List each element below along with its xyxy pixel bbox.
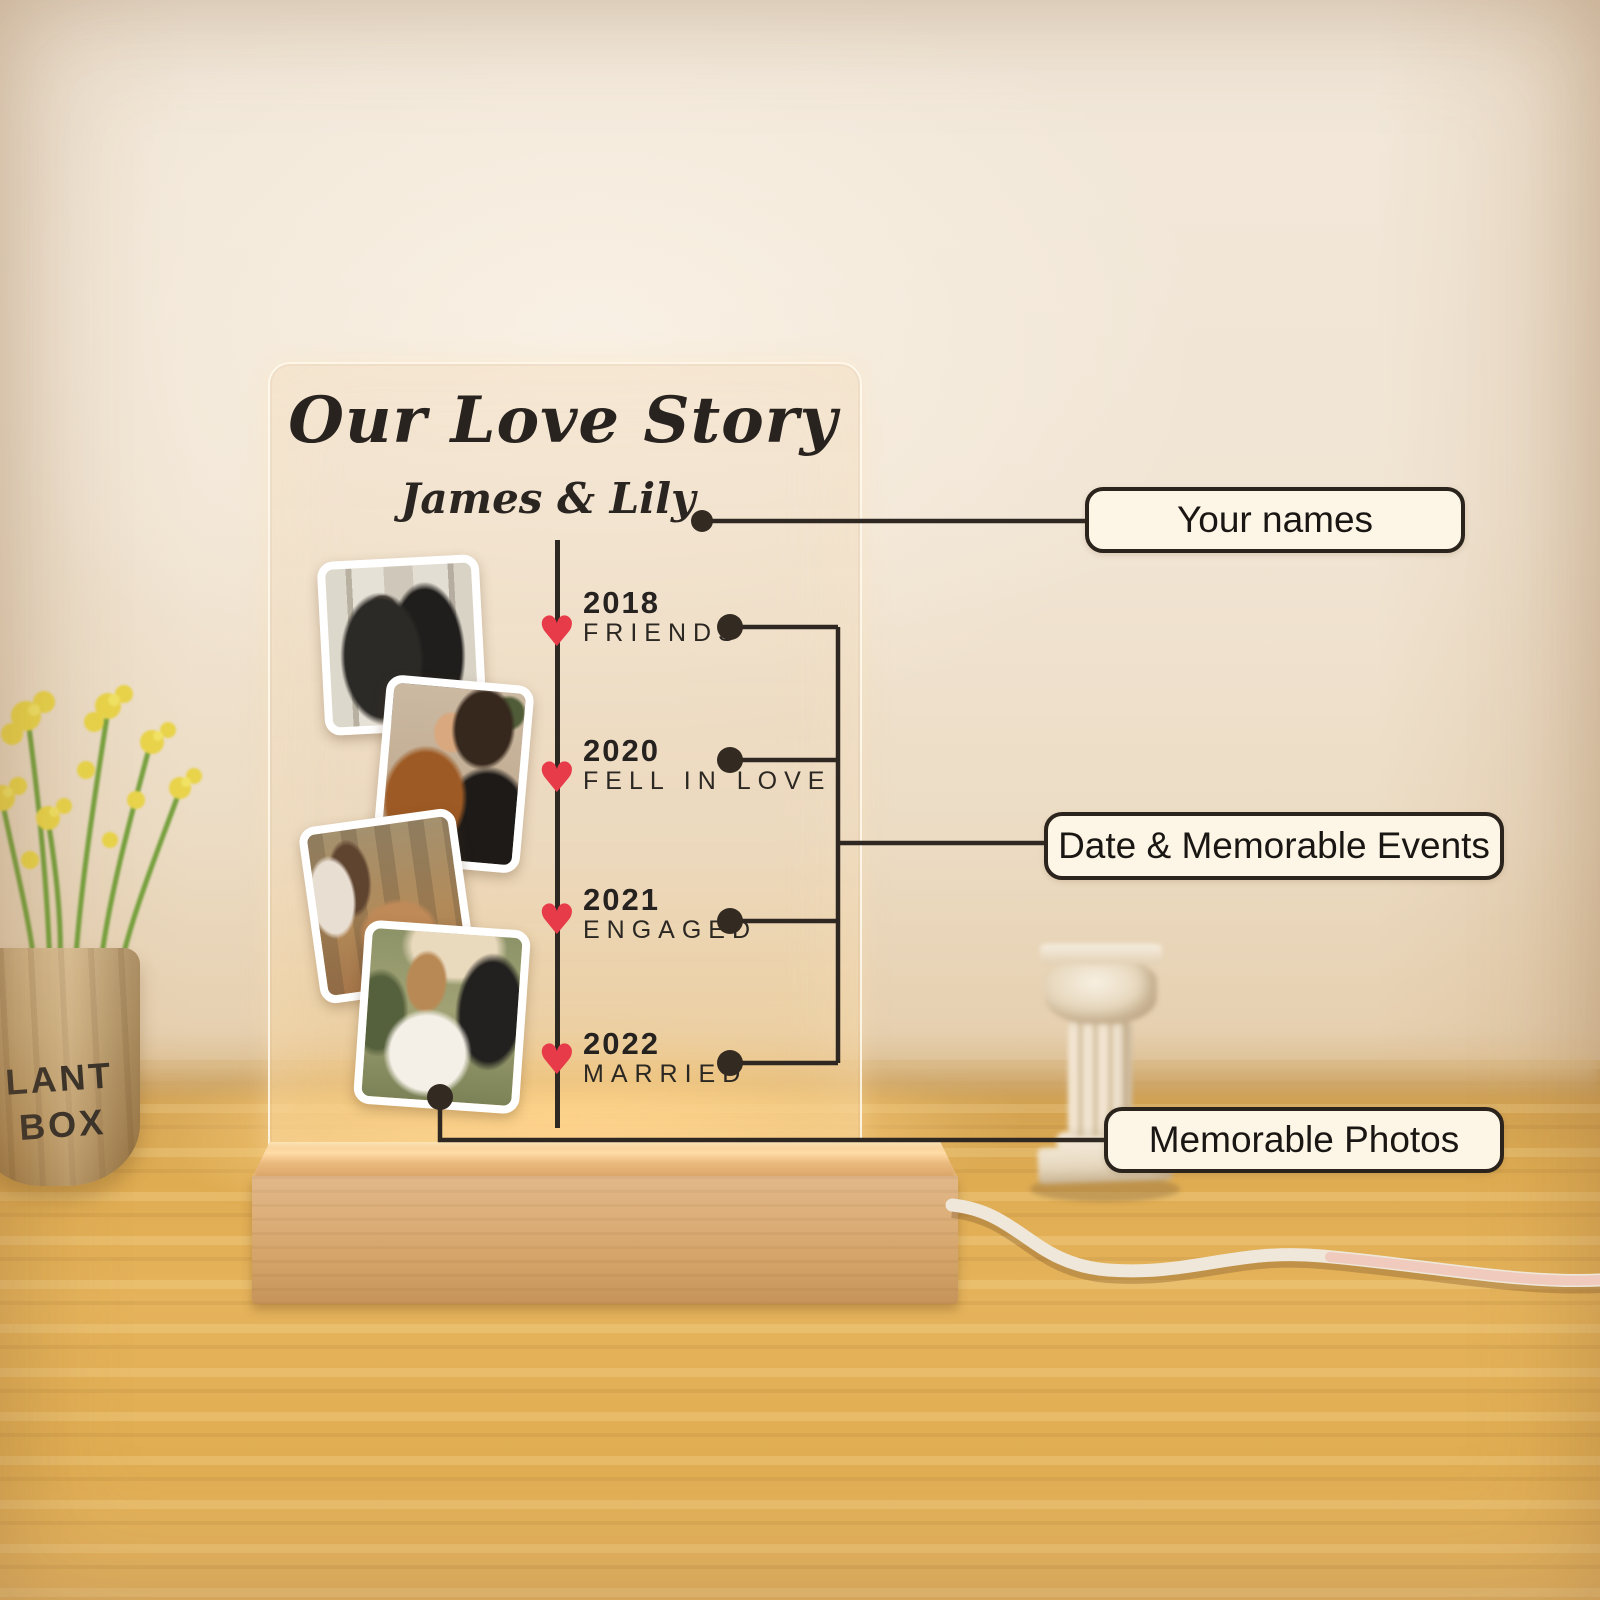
product-photo-scene: LANT BOX Our Love Story James & Lily ♥ ♥…	[0, 0, 1600, 1600]
callout-date-events: Date & Memorable Events	[1044, 812, 1504, 880]
photos-connector-line	[440, 1097, 1108, 1140]
callout-your-names-label: Your names	[1177, 499, 1373, 541]
event-2018-dot	[717, 614, 743, 640]
names-connector-dot	[691, 510, 713, 532]
callout-your-names: Your names	[1085, 487, 1465, 553]
callout-date-events-label: Date & Memorable Events	[1058, 825, 1490, 867]
annotation-connectors	[0, 0, 1600, 1600]
callout-memorable-photos-label: Memorable Photos	[1149, 1119, 1460, 1161]
photos-connector-dot	[427, 1084, 453, 1110]
callout-memorable-photos: Memorable Photos	[1104, 1107, 1504, 1173]
event-2020-dot	[717, 747, 743, 773]
event-2021-dot	[717, 908, 743, 934]
event-2022-dot	[717, 1050, 743, 1076]
